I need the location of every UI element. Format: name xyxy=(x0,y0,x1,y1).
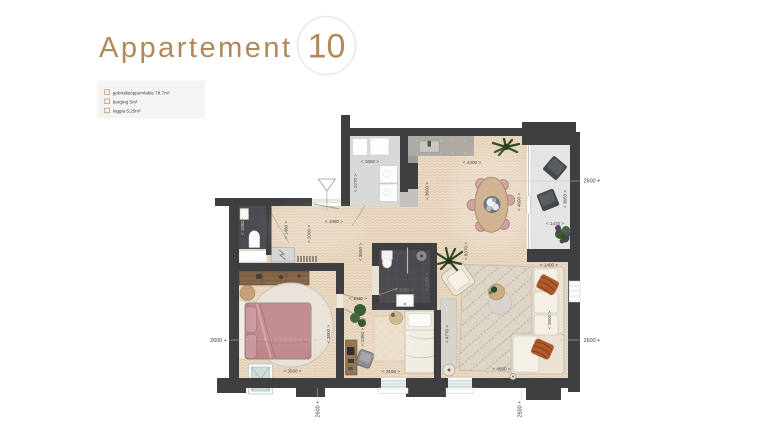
svg-text:< 3600 >: < 3600 > xyxy=(425,182,430,200)
svg-text:< 3800 >: < 3800 > xyxy=(326,325,331,343)
svg-text:< 4300 >: < 4300 > xyxy=(463,160,481,165)
svg-text:berging 5m²: berging 5m² xyxy=(113,100,138,105)
svg-text:loggia 5,25m²: loggia 5,25m² xyxy=(113,109,141,114)
svg-text:< 1470 >: < 1470 > xyxy=(546,221,564,226)
svg-text:2600 +: 2600 + xyxy=(518,401,524,418)
svg-text:10: 10 xyxy=(308,28,346,66)
svg-text:2600 +: 2600 + xyxy=(584,338,601,344)
svg-text:< 2350 >: < 2350 > xyxy=(360,328,365,346)
svg-text:< 2270 >: < 2270 > xyxy=(353,174,358,192)
svg-text:2600 +: 2600 + xyxy=(316,401,322,418)
svg-text:< 1480 >: < 1480 > xyxy=(284,221,289,239)
svg-text:< 3650 >: < 3650 > xyxy=(563,190,568,208)
svg-text:< 1080 >: < 1080 > xyxy=(240,217,245,235)
svg-text:< 1030 >: < 1030 > xyxy=(349,296,367,301)
svg-text:Appartement: Appartement xyxy=(99,32,293,64)
svg-text:< 1400 >: < 1400 > xyxy=(540,263,558,268)
svg-text:< 4770 >: < 4770 > xyxy=(445,325,450,343)
svg-text:< 1650 >: < 1650 > xyxy=(361,159,379,164)
svg-text:< 3550 >: < 3550 > xyxy=(358,243,363,261)
svg-text:< 3900 >: < 3900 > xyxy=(547,311,552,329)
svg-text:< 3500 >: < 3500 > xyxy=(283,369,301,374)
svg-text:< 4800 >: < 4800 > xyxy=(517,193,522,211)
svg-text:< 4380 >: < 4380 > xyxy=(325,219,343,224)
svg-text:< 8370 >: < 8370 > xyxy=(464,242,469,260)
svg-text:< 3150 >: < 3150 > xyxy=(382,369,400,374)
svg-text:< 2187 >: < 2187 > xyxy=(425,273,430,291)
svg-text:gebruiksoppervlakte 78,7m²: gebruiksoppervlakte 78,7m² xyxy=(113,90,170,95)
svg-text:< 4500 >: < 4500 > xyxy=(492,367,510,372)
svg-text:< 2030 >: < 2030 > xyxy=(395,288,413,293)
svg-text:< 2000 >: < 2000 > xyxy=(307,225,312,243)
svg-text:2600 +: 2600 + xyxy=(210,338,227,344)
svg-text:2600 +: 2600 + xyxy=(584,179,601,185)
